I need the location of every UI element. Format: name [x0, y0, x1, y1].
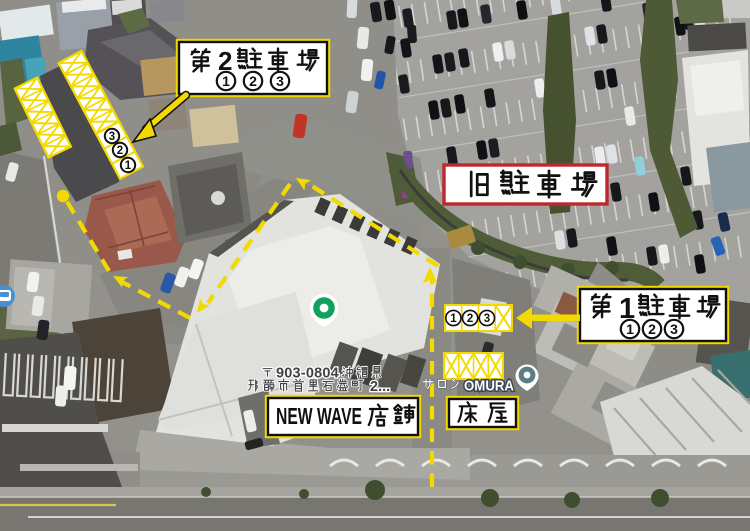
svg-text:1: 1 [450, 313, 457, 325]
svg-text:3: 3 [276, 73, 284, 89]
svg-text:1: 1 [125, 160, 132, 172]
svg-text:2: 2 [117, 145, 123, 157]
svg-text:OMURA: OMURA [464, 378, 514, 395]
svg-text:3: 3 [484, 313, 490, 325]
svg-text:1: 1 [222, 73, 230, 89]
svg-text:NEW WAVE: NEW WAVE [276, 403, 362, 429]
svg-text:903-0804: 903-0804 [276, 366, 339, 382]
svg-text:1: 1 [626, 321, 634, 337]
svg-text:2: 2 [648, 321, 656, 337]
svg-text:2...: 2... [370, 379, 390, 395]
svg-text:2: 2 [467, 313, 473, 325]
svg-text:3: 3 [109, 131, 115, 143]
svg-text:2: 2 [249, 73, 257, 89]
svg-text:3: 3 [670, 321, 678, 337]
